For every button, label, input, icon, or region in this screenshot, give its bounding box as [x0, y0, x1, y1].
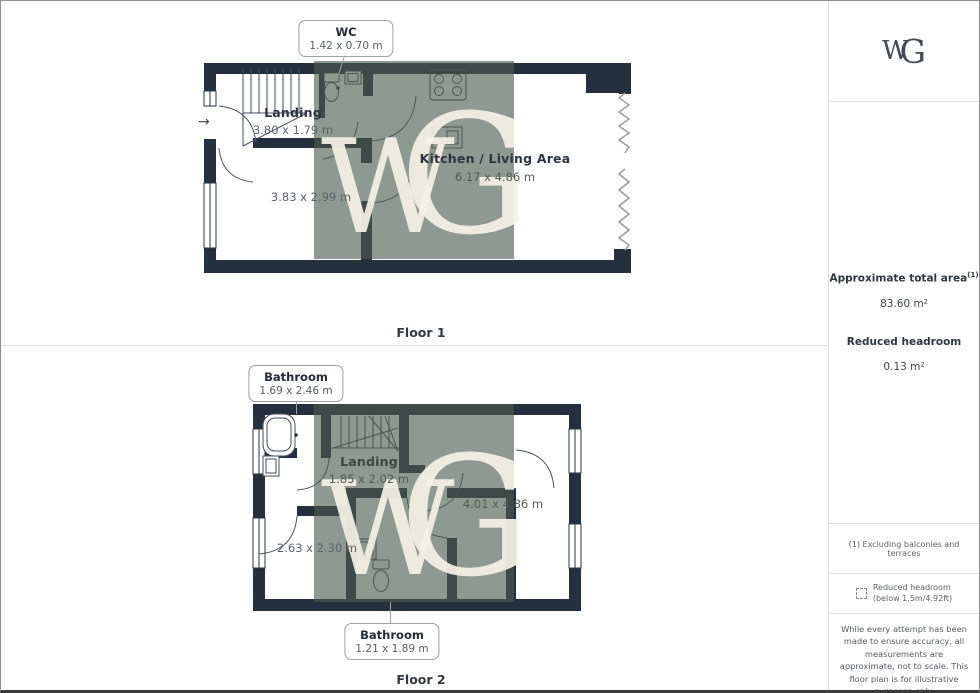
floor1-open-wall-zigzag: [619, 93, 629, 250]
bathtub-icon: [263, 414, 295, 456]
area-summary: Approximate total area(1) 83.60 m² Reduc…: [829, 271, 979, 373]
room-dims-bedroom: 4.01 x 4.86 m: [463, 497, 543, 511]
callout-bathroom-top-title: Bathroom: [259, 370, 332, 384]
room-label-landing-f1: Landing: [264, 105, 322, 120]
room-label-landing-f2: Landing: [340, 454, 398, 469]
legend-reduced-headroom-text: Reduced headroom (below 1.5m/4.92ft): [873, 583, 952, 605]
footnote-excluding-text: (1) Excluding balconies and terraces: [829, 540, 979, 558]
room-dims-landing-f1: 3.80 x 1.79 m: [253, 123, 333, 137]
room-dims-kitchen-living: 6.17 x 4.86 m: [455, 170, 535, 184]
room-dims-room-f1: 3.83 x 2.99 m: [271, 190, 351, 204]
callout-bathroom-top-dims: 1.69 x 2.46 m: [259, 385, 332, 397]
agency-logo: W G: [829, 1, 979, 102]
callout-wc: WC 1.42 x 0.70 m: [298, 20, 393, 57]
disclaimer-text: While every attempt has been made to ens…: [837, 623, 971, 693]
footnote-excluding: (1) Excluding balconies and terraces: [829, 523, 979, 573]
room-label-kitchen-living: Kitchen / Living Area: [420, 151, 571, 166]
entry-arrow-icon: →: [198, 114, 210, 130]
scan-point: [294, 433, 298, 437]
callout-bathroom-bottom-dims: 1.21 x 1.89 m: [355, 643, 428, 655]
callout-bathroom-bottom: Bathroom 1.21 x 1.89 m: [344, 623, 439, 660]
callout-bathroom-top: Bathroom 1.69 x 2.46 m: [248, 365, 343, 402]
callout-wc-dims: 1.42 x 0.70 m: [309, 40, 382, 52]
reduced-headroom-value: 0.13 m²: [829, 361, 979, 373]
logo-letter-g: G: [900, 35, 926, 68]
floorplan-page: W G W G WC 1.42 x 0.70 m → Landing 3.80 …: [0, 0, 980, 693]
room-dims-landing-f2: 1.85 x 2.02 m: [329, 472, 409, 486]
floor2-label: Floor 2: [396, 672, 445, 687]
total-area-footnote-marker: (1): [967, 271, 978, 279]
floors-divider: [1, 345, 829, 346]
floor1-label: Floor 1: [396, 325, 445, 340]
total-area-label: Approximate total area(1): [829, 271, 979, 285]
room-dims-room-f2: 2.63 x 2.30 m: [277, 541, 357, 555]
callout-wc-title: WC: [309, 25, 382, 39]
legend-reduced-headroom: Reduced headroom (below 1.5m/4.92ft): [829, 573, 979, 613]
callout-bathroom-bottom-title: Bathroom: [355, 628, 428, 642]
total-area-value: 83.60 m²: [829, 298, 979, 310]
disclaimer-section: While every attempt has been made to ens…: [829, 613, 979, 690]
reduced-headroom-legend-icon: [856, 588, 867, 599]
callout-bathroom-bottom-pointer: [390, 602, 391, 623]
info-sidebar: W G Approximate total area(1) 83.60 m² R…: [828, 1, 979, 690]
reduced-headroom-label: Reduced headroom: [829, 336, 979, 348]
